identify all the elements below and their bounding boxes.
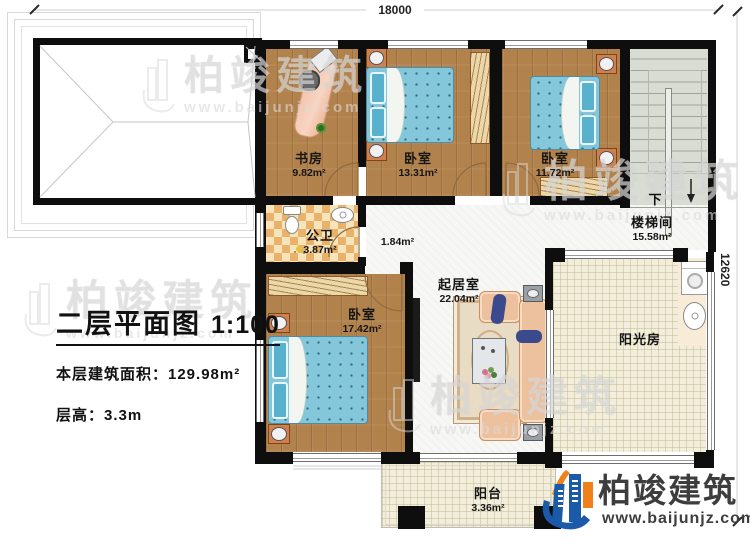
wall (358, 205, 366, 227)
room-label-living: 起居室 22.04m² (417, 277, 501, 306)
desk-chair (299, 70, 320, 91)
floor-height-text: 层高：3.3m (56, 404, 280, 425)
wall (620, 40, 630, 208)
potted-plant (314, 121, 328, 135)
room-label-hallway: 1.84m² (370, 236, 425, 249)
plan-title-line: 二层平面图1:100 (56, 302, 280, 346)
room-label-bedroom-mid: 卧室 13.31m² (378, 151, 458, 180)
wall (358, 45, 366, 167)
window (256, 213, 264, 247)
company-website: www.baijunjz.com (602, 510, 750, 528)
end-table (523, 285, 543, 302)
plan-scale: 1:100 (211, 311, 280, 339)
wall (366, 196, 455, 205)
roof-parapet-wall (33, 38, 262, 205)
floor-area-text: 本层建筑面积：129.98m² (56, 363, 280, 384)
nightstand (366, 48, 387, 68)
stair-flight-outline (648, 70, 702, 172)
wall (708, 40, 716, 252)
bed-blanket (561, 77, 579, 149)
company-name: 柏竣建筑 (598, 474, 738, 507)
person-figure (516, 330, 542, 343)
tv-on-wall (413, 298, 420, 382)
wall (255, 452, 293, 464)
balcony-door-window (420, 453, 517, 462)
dimension-right: 12620 (718, 250, 732, 289)
wall (673, 248, 688, 262)
wall (490, 45, 502, 196)
wall (545, 262, 553, 310)
wall (530, 196, 620, 205)
sunroom-glass-door (546, 310, 554, 418)
nightstand (268, 424, 290, 444)
bed-pillows (580, 81, 596, 145)
room-label-bedroom-left: 卧室 17.42m² (322, 307, 402, 336)
bed-pillows (370, 72, 386, 138)
title-block: 二层平面图1:100 本层建筑面积：129.98m² 层高：3.3m (56, 302, 280, 425)
window (388, 40, 468, 49)
plan-title: 二层平面图 (56, 309, 201, 339)
floorplan-canvas: 18000 12620 书房 9.82m² 卧室 13.31m² 卧室 11.7… (0, 0, 750, 541)
room-label-sunroom: 阳光房 (600, 332, 680, 348)
balcony-pillar (398, 506, 425, 529)
stair-handrail (665, 88, 672, 236)
nightstand (596, 54, 617, 74)
armchair (479, 409, 521, 441)
wall (706, 252, 714, 272)
wall (255, 262, 365, 274)
bathroom-sink (331, 207, 354, 223)
end-table (523, 424, 543, 441)
dimension-top: 18000 (366, 3, 424, 17)
wall (356, 196, 366, 205)
stair-landing-edge (630, 207, 708, 208)
nightstand (596, 148, 617, 168)
room-label-balcony: 阳台 3.36m² (448, 486, 528, 515)
sofa (519, 299, 548, 423)
window-sill-lines (293, 466, 381, 469)
watermark-logo-icon (22, 280, 58, 338)
wardrobe (470, 52, 490, 144)
window (565, 250, 673, 259)
wall (405, 262, 413, 462)
stair-down-label: 下 (644, 189, 666, 208)
company-logo-icon (536, 464, 600, 536)
double-bed (268, 336, 368, 424)
wall (255, 40, 266, 196)
coffee-table (472, 338, 506, 384)
window (293, 453, 381, 462)
wall (255, 196, 333, 205)
wall (381, 452, 420, 464)
bed-blanket (387, 68, 405, 142)
double-bed (530, 76, 600, 150)
company-logo: 柏竣建筑 www.baijunjz.com (528, 460, 750, 538)
laundry-sink (683, 302, 706, 330)
bed-blanket (289, 337, 307, 423)
room-label-bedroom-right: 卧室 11.72m² (515, 151, 595, 180)
window (290, 40, 338, 49)
room-label-stairwell: 楼梯间 15.58m² (612, 215, 692, 244)
window (505, 40, 587, 49)
wardrobe (268, 276, 368, 296)
toilet-tank (283, 206, 301, 215)
window (707, 272, 715, 450)
room-label-study: 书房 9.82m² (269, 151, 349, 180)
room-label-bathroom: 公卫 3.87m² (280, 228, 360, 257)
wall (545, 248, 565, 262)
washing-machine (681, 261, 708, 295)
double-bed (366, 67, 454, 143)
